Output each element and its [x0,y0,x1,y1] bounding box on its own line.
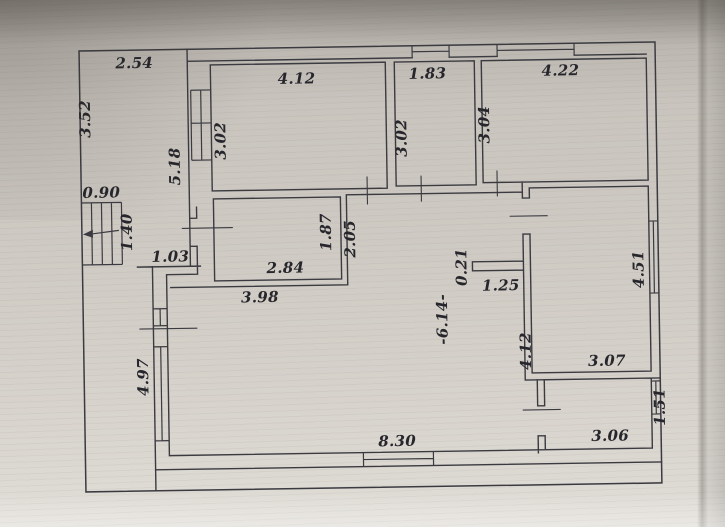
dim-terrace-depth: 3.52 [76,100,95,138]
dim-room-bottom-right-depth: 1.51 [650,388,669,426]
dim-bottom-width: 8.30 [378,432,416,451]
dim-stub-length: 1.25 [482,276,520,295]
dim-terrace-width: 2.54 [114,54,153,73]
dim-porch-width: 0.90 [82,183,120,202]
dim-room-right-depth-left: 4.12 [517,332,536,370]
dim-passage-depth: 2.05 [341,220,360,259]
interior-walls [134,42,662,491]
dim-room-top-left-depth: 3.02 [211,122,230,160]
dim-room-middle-width: 2.84 [265,258,304,277]
window-symbols [149,42,662,470]
dim-hall-length: -6.14- [433,294,452,345]
dim-room-top-right-width: 4.22 [541,61,579,80]
dim-room-right-width: 3.07 [588,351,626,370]
dim-left-wall-lower: 4.97 [134,358,153,396]
floor-plan-canvas: 2.54 3.52 0.90 1.40 5.18 1.03 4.12 3.02 … [0,0,725,527]
dim-left-wall-upper: 5.18 [166,147,185,185]
dim-entry-jog: 1.03 [151,247,189,266]
dim-room-bottom-right-width: 3.06 [591,426,629,445]
floor-plan-photo: 2.54 3.52 0.90 1.40 5.18 1.03 4.12 3.02 … [0,0,725,527]
dim-room-top-middle-depth: 3.02 [392,119,411,157]
dim-room-right-depth-right: 4.51 [629,250,648,288]
dim-room-top-right-depth: 3.04 [475,106,494,144]
dim-room-top-left-width: 4.12 [277,69,315,88]
dim-hall-top-width: 3.98 [241,288,279,307]
dim-stub-thickness: 0.21 [452,248,471,286]
dim-room-top-middle-width: 1.83 [408,64,446,83]
dim-porch-depth: 1.40 [118,213,137,251]
stairs-arrow-icon [83,230,93,238]
dim-room-middle-depth: 1.87 [317,213,336,251]
